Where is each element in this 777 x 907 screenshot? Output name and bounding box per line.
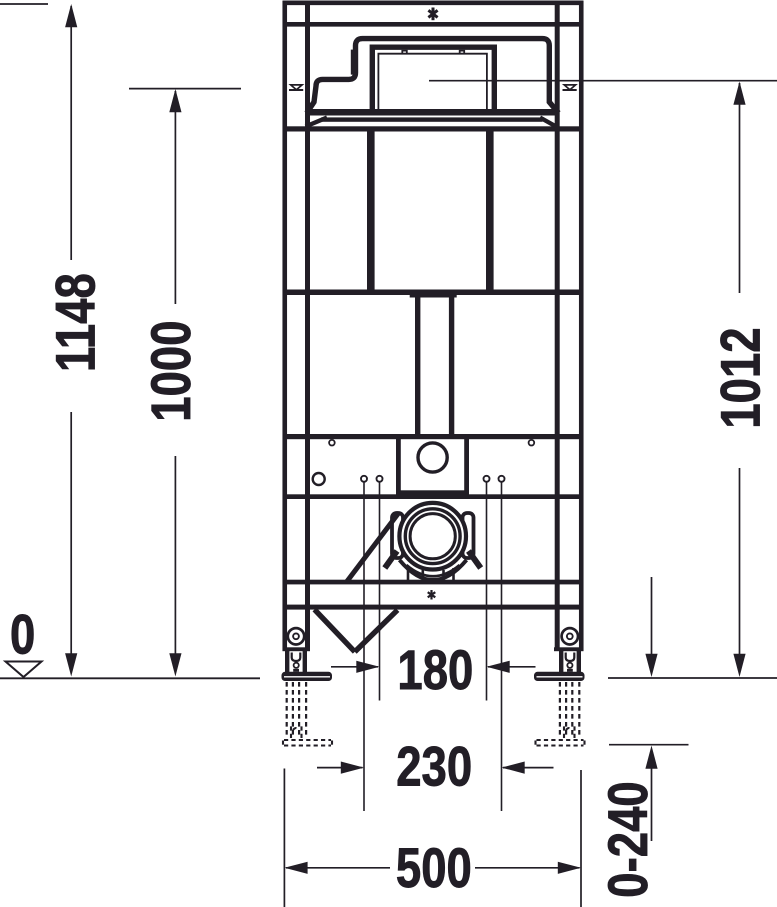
svg-text:230: 230 bbox=[396, 735, 472, 797]
svg-text:0: 0 bbox=[10, 603, 35, 665]
svg-text:1148: 1148 bbox=[44, 273, 106, 372]
svg-text:1012: 1012 bbox=[709, 327, 771, 428]
svg-text:500: 500 bbox=[396, 837, 472, 899]
svg-text:0-240: 0-240 bbox=[597, 781, 659, 897]
svg-text:1000: 1000 bbox=[140, 320, 202, 421]
svg-text:180: 180 bbox=[397, 639, 473, 701]
